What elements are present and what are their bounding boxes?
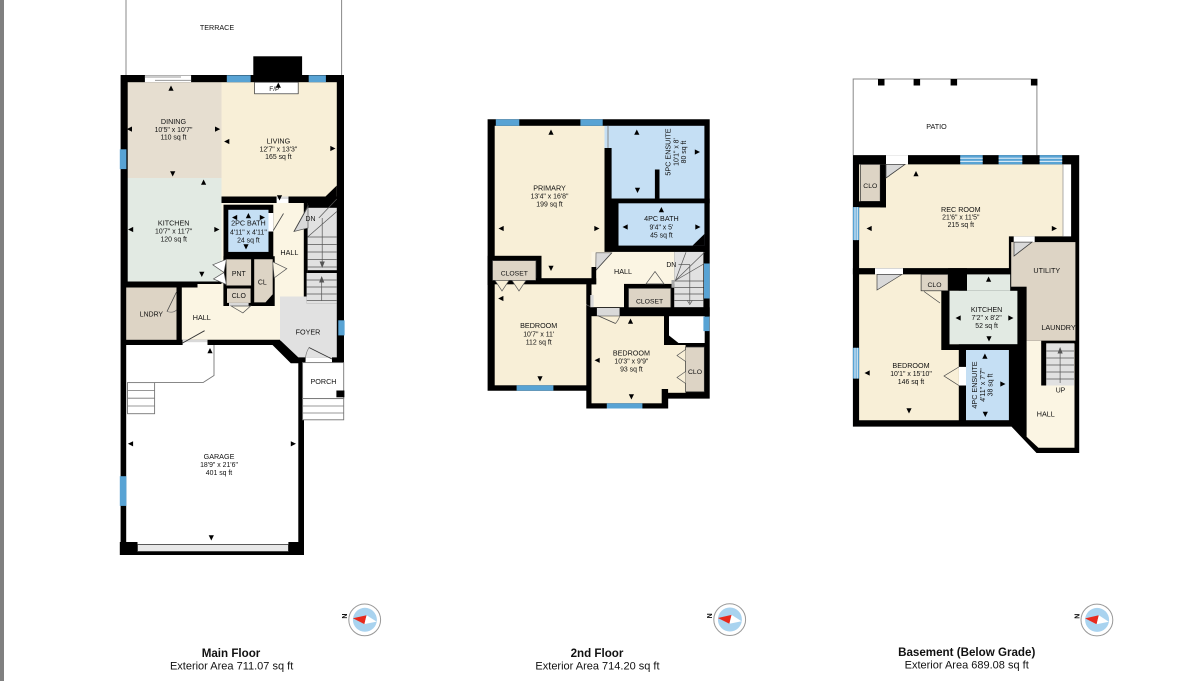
svg-text:PRIMARY: PRIMARY	[533, 184, 566, 193]
svg-text:7'2" x 8'2": 7'2" x 8'2"	[972, 315, 1003, 322]
svg-text:LNDRY: LNDRY	[140, 312, 164, 319]
svg-text:TERRACE: TERRACE	[200, 23, 235, 32]
svg-text:45 sq ft: 45 sq ft	[650, 233, 673, 240]
svg-text:18'9" x 21'6": 18'9" x 21'6"	[200, 462, 238, 469]
svg-text:CLO: CLO	[232, 293, 247, 300]
svg-text:401 sq ft: 401 sq ft	[206, 470, 233, 477]
svg-text:10'3" x 9'9": 10'3" x 9'9"	[614, 358, 649, 365]
svg-text:12'7" x 13'3": 12'7" x 13'3"	[260, 146, 298, 153]
svg-text:PNT: PNT	[232, 271, 247, 278]
svg-text:N: N	[707, 613, 714, 618]
svg-text:CLO: CLO	[688, 369, 702, 376]
svg-text:KITCHEN: KITCHEN	[158, 218, 190, 227]
svg-text:HALL: HALL	[280, 248, 298, 257]
svg-text:10'7" x 11': 10'7" x 11'	[523, 331, 554, 338]
svg-text:BEDROOM: BEDROOM	[613, 348, 650, 357]
svg-text:PORCH: PORCH	[311, 377, 337, 386]
svg-text:Exterior Area 714.20 sq ft: Exterior Area 714.20 sq ft	[535, 660, 659, 672]
svg-text:2nd Floor: 2nd Floor	[571, 647, 624, 660]
svg-text:10'5" x 10'7": 10'5" x 10'7"	[155, 127, 193, 134]
svg-text:CLOSET: CLOSET	[636, 299, 663, 306]
svg-text:DN: DN	[666, 262, 676, 269]
svg-text:110 sq ft: 110 sq ft	[161, 135, 187, 142]
svg-text:199 sq ft: 199 sq ft	[536, 202, 563, 209]
svg-text:4'11" x 7'7": 4'11" x 7'7"	[980, 368, 987, 402]
svg-text:10'7" x 11'7": 10'7" x 11'7"	[155, 228, 193, 235]
svg-text:Exterior Area 689.08 sq ft: Exterior Area 689.08 sq ft	[905, 660, 1029, 672]
svg-text:146 sq ft: 146 sq ft	[898, 379, 925, 386]
svg-text:HALL: HALL	[614, 267, 632, 276]
svg-text:21'6" x 11'5": 21'6" x 11'5"	[942, 214, 980, 221]
svg-text:N: N	[342, 614, 349, 619]
svg-text:165 sq ft: 165 sq ft	[265, 154, 292, 161]
svg-text:KITCHEN: KITCHEN	[971, 305, 1003, 314]
svg-text:5PC ENSUITE: 5PC ENSUITE	[663, 128, 672, 175]
svg-text:120 sq ft: 120 sq ft	[160, 236, 187, 243]
svg-text:HALL: HALL	[193, 313, 211, 322]
svg-text:DN: DN	[306, 216, 316, 223]
svg-text:10'1" x 15'10": 10'1" x 15'10"	[890, 371, 932, 378]
svg-text:N: N	[1074, 614, 1081, 619]
svg-text:10'1" x 8': 10'1" x 8'	[673, 138, 680, 166]
svg-text:GARAGE: GARAGE	[204, 452, 235, 461]
svg-text:215 sq ft: 215 sq ft	[948, 222, 975, 229]
svg-text:BEDROOM: BEDROOM	[520, 321, 557, 330]
svg-text:4'11" x 4'11": 4'11" x 4'11"	[230, 229, 267, 236]
svg-text:UTILITY: UTILITY	[1033, 266, 1060, 275]
svg-text:CL: CL	[258, 279, 267, 286]
svg-text:LAUNDRY: LAUNDRY	[1041, 323, 1075, 332]
svg-text:13'4" x 16'8": 13'4" x 16'8"	[531, 194, 569, 201]
svg-text:80 sq ft: 80 sq ft	[681, 141, 688, 164]
svg-text:9'4" x 5': 9'4" x 5'	[649, 225, 673, 232]
svg-text:CLOSET: CLOSET	[501, 270, 528, 277]
svg-text:BEDROOM: BEDROOM	[892, 361, 929, 370]
svg-text:52 sq ft: 52 sq ft	[975, 323, 998, 330]
svg-text:CLO: CLO	[863, 183, 877, 190]
svg-text:Basement (Below Grade): Basement (Below Grade)	[898, 646, 1035, 659]
svg-text:Exterior Area 711.07 sq ft: Exterior Area 711.07 sq ft	[170, 660, 293, 672]
svg-text:REC ROOM: REC ROOM	[941, 205, 981, 214]
svg-text:93 sq ft: 93 sq ft	[620, 366, 643, 373]
svg-text:112 sq ft: 112 sq ft	[526, 339, 552, 346]
svg-text:FOYER: FOYER	[296, 328, 321, 337]
svg-text:4PC ENSUITE: 4PC ENSUITE	[970, 361, 979, 408]
svg-text:Main Floor: Main Floor	[202, 647, 261, 660]
svg-text:24 sq ft: 24 sq ft	[237, 237, 260, 244]
svg-text:HALL: HALL	[1037, 410, 1055, 419]
svg-text:4PC BATH: 4PC BATH	[644, 214, 679, 223]
svg-text:38 sq ft: 38 sq ft	[988, 374, 995, 397]
svg-text:DINING: DINING	[161, 117, 187, 126]
svg-text:CLO: CLO	[928, 282, 942, 289]
svg-text:PATIO: PATIO	[926, 122, 947, 131]
svg-text:UP: UP	[1056, 388, 1066, 395]
svg-text:LIVING: LIVING	[267, 136, 291, 145]
